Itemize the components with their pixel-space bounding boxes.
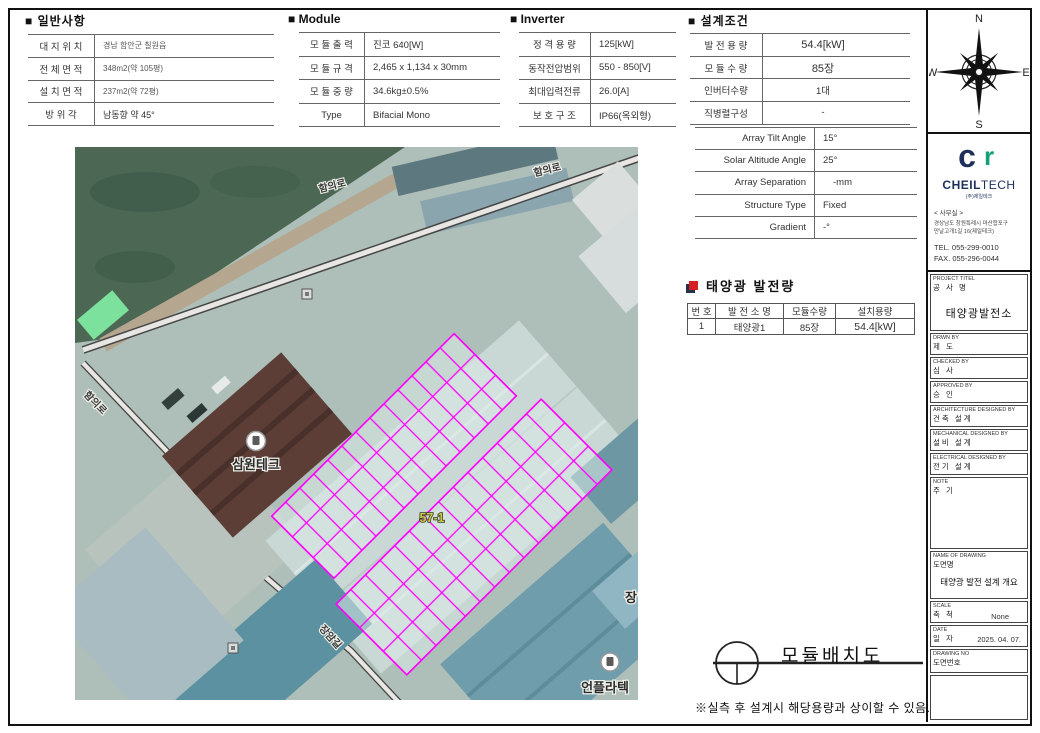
- cell: 54.4[kW]: [836, 319, 914, 334]
- row-value: IP66(옥외형): [591, 104, 676, 127]
- generation-section-title: 태양광 발전량: [686, 276, 795, 295]
- map-label-company: 언플라텍: [581, 680, 629, 695]
- titleblock-drawing-no: DRAWING NO도면번호: [930, 649, 1028, 673]
- office-contacts: TEL. 055-299-0010FAX. 055-296-0044: [934, 242, 1026, 265]
- col-header: 번 호: [688, 304, 716, 319]
- row-label: Gradient: [695, 217, 815, 238]
- row-value: Bifacial Mono: [365, 104, 500, 127]
- module-section-title: ■ Module: [288, 12, 341, 26]
- drawing-name-value: 태양광 발전 설계 개요: [931, 576, 1027, 588]
- titleblock-note: NOTE주 기: [930, 477, 1028, 549]
- compass-w: W: [929, 67, 938, 79]
- company-logo-box: c r CHEILTECH (주)제일테크 < 사무실 > 경상남도 창원특례시…: [928, 134, 1030, 272]
- row-value: 125[kW]: [591, 33, 676, 56]
- titleblock-architecture: ARCHITECTURE DESIGNED BY건축 설계: [930, 405, 1028, 427]
- footer-note: ※실측 후 설계시 해당용량과 상이할 수 있음.: [695, 699, 931, 716]
- compass-s: S: [975, 119, 982, 130]
- row-label: 직병렬구성: [690, 102, 763, 124]
- scale-value: None: [991, 612, 1009, 621]
- row-value: 15°: [815, 128, 917, 149]
- poi-marker: [247, 432, 266, 451]
- row-value: Fixed: [815, 195, 917, 216]
- row-label: Array Tilt Angle: [695, 128, 815, 149]
- row-label: Type: [299, 104, 365, 127]
- row-value: -°: [815, 217, 917, 238]
- titleblock-empty: [930, 675, 1028, 720]
- row-label: Solar Altitude Angle: [695, 150, 815, 171]
- titleblock-date: DATE 일 자 2025. 04. 07.: [930, 625, 1028, 647]
- small-building-icon: [302, 289, 312, 299]
- row-value: -mm: [815, 172, 917, 193]
- row-value: 54.4[kW]: [763, 34, 883, 56]
- generation-table: 번 호 발 전 소 명 모듈수량 설치용량 1 태양광1 85장 54.4[kW…: [687, 303, 915, 335]
- generation-title-text: 태양광 발전량: [706, 276, 795, 295]
- row-value: -: [763, 102, 883, 124]
- cheiltech-logo-icon: c r: [949, 140, 1009, 172]
- row-value: 경남 함안군 칠원읍: [95, 35, 274, 57]
- row-label: 인버터수량: [690, 79, 763, 101]
- titleblock-checked: CHECKED BY심 사: [930, 357, 1028, 379]
- titleblock-mechanical: MECHANICAL DESIGNED BY설비 설계: [930, 429, 1028, 451]
- row-label: 전 체 면 적: [28, 58, 95, 80]
- row-label: 모 듈 중 량: [299, 80, 365, 103]
- col-header: 발 전 소 명: [716, 304, 784, 319]
- compass-rose-icon: N S W E: [929, 12, 1029, 130]
- red-square-icon: [689, 281, 698, 290]
- compass-box: N S W E: [928, 10, 1030, 134]
- row-label: 방 위 각: [28, 103, 95, 125]
- compass-n: N: [975, 13, 983, 25]
- cell: 1: [688, 319, 716, 334]
- row-value: 1대: [763, 79, 883, 101]
- row-label: Array Separation: [695, 172, 815, 193]
- col-header: 설치용량: [836, 304, 914, 319]
- general-section-title: ■ 일반사항: [25, 12, 86, 29]
- map-label-company: 장: [625, 590, 637, 605]
- cell: 85장: [784, 319, 836, 334]
- satellite-map: 함의로 함의로 함의로 장암길 삼원테크 언플라텍 장 57-1: [75, 147, 638, 700]
- row-label: 설 치 면 적: [28, 81, 95, 103]
- small-building-icon: [228, 643, 238, 653]
- row-label: 정 격 용 량: [519, 33, 591, 56]
- row-label: 보 호 구 조: [519, 104, 591, 127]
- row-value: 남동향 약 45°: [95, 103, 274, 125]
- row-label: 모 듈 규 격: [299, 57, 365, 80]
- row-value: 34.6kg±0.5%: [365, 80, 500, 103]
- office-address: 경상남도 창원특례시 마산합포구만날고개1길 16(제일테크): [934, 220, 1026, 237]
- row-label: 발 전 용 량: [690, 34, 763, 56]
- svg-text:r: r: [984, 141, 994, 171]
- row-label: 동작전압범위: [519, 57, 591, 80]
- row-value: 85장: [763, 57, 883, 79]
- date-value: 2025. 04. 07.: [977, 635, 1021, 644]
- design-section-title: ■ 설계조건: [688, 12, 749, 29]
- general-table: 대 지 위 치경남 함안군 칠원읍 전 체 면 적348m2(약 105평) 설…: [28, 34, 274, 126]
- row-label: 최대입력전류: [519, 80, 591, 103]
- design-table-2: Array Tilt Angle15° Solar Altitude Angle…: [695, 127, 917, 239]
- titleblock-drawing-name: NAME OF DRAWING 도면명 태양광 발전 설계 개요: [930, 551, 1028, 599]
- titleblock-drwn: DRWN BY제 도: [930, 333, 1028, 355]
- row-value: 25°: [815, 150, 917, 171]
- company-wordmark: CHEILTECH: [928, 178, 1030, 192]
- cell: 태양광1: [716, 319, 784, 334]
- titleblock-project: PROJECT TITEL 공 사 명 태양광발전소: [930, 274, 1028, 331]
- module-table: 모 듈 출 력진코 640[W] 모 듈 규 격2,465 x 1,134 x …: [299, 32, 500, 127]
- inverter-table: 정 격 용 량125[kW] 동작전압범위550 - 850[V] 최대입력전류…: [519, 32, 676, 127]
- title-block-sections: PROJECT TITEL 공 사 명 태양광발전소 DRWN BY제 도 CH…: [928, 272, 1030, 722]
- titleblock-approved: APPROVED BY승 인: [930, 381, 1028, 403]
- row-value: 550 - 850[V]: [591, 57, 676, 80]
- row-label: 모 듈 수 량: [690, 57, 763, 79]
- col-header: 모듈수량: [784, 304, 836, 319]
- map-parcel-number: 57-1: [419, 511, 444, 525]
- compass-e: E: [1022, 67, 1029, 79]
- map-label-company: 삼원테크: [232, 457, 280, 472]
- drawing-title: 모듈배치도: [781, 641, 883, 668]
- row-value: 진코 640[W]: [365, 33, 500, 56]
- company-subname: (주)제일테크: [928, 193, 1030, 200]
- office-label: < 사무실 >: [934, 207, 1026, 217]
- project-title-value: 태양광발전소: [931, 305, 1027, 321]
- design-table-1: 발 전 용 량54.4[kW] 모 듈 수 량85장 인버터수량1대 직병렬구성…: [690, 33, 910, 125]
- row-label: 대 지 위 치: [28, 35, 95, 57]
- row-value: 2,465 x 1,134 x 30mm: [365, 57, 500, 80]
- row-label: 모 듈 출 력: [299, 33, 365, 56]
- row-value: 348m2(약 105평): [95, 58, 274, 80]
- row-value: 237m2(약 72평): [95, 81, 274, 103]
- office-info: < 사무실 > 경상남도 창원특례시 마산합포구만날고개1길 16(제일테크) …: [928, 200, 1030, 265]
- row-value: 26.0[A]: [591, 80, 676, 103]
- row-label: Structure Type: [695, 195, 815, 216]
- title-block-column: N S W E c r CHEILTECH (주)제일테크 < 사무실 > 경상…: [926, 10, 1030, 722]
- svg-text:c: c: [958, 140, 976, 172]
- poi-marker: [601, 653, 619, 671]
- titleblock-scale: SCALE 축 척 None: [930, 601, 1028, 623]
- inverter-section-title: ■ Inverter: [510, 12, 565, 26]
- titleblock-electrical: ELECTRICAL DESIGNED BY전기 설계: [930, 453, 1028, 475]
